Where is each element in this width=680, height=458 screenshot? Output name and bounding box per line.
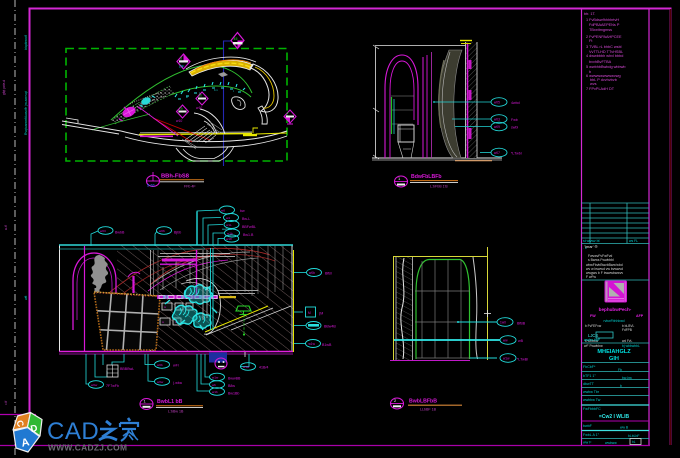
svg-text:5-01: 5-01 xyxy=(147,183,156,188)
svg-text:w1w: w1w xyxy=(309,342,316,346)
svg-text:CAD: CAD xyxy=(47,418,99,445)
svg-text:ww: ww xyxy=(503,339,508,343)
svg-text:41B/4: 41B/4 xyxy=(259,366,268,370)
svg-text:Rvqtxammfdwaxtfr jm amrvqt: Rvqtxammfdwaxtfr jm amrvqt xyxy=(24,91,28,135)
svg-text:btr. 1T.: btr. 1T. xyxy=(584,12,595,16)
svg-text:bvvhBvFTBA: bvvhBvFTBA xyxy=(589,60,612,64)
svg-text:L:bBw 1B: L:bBw 1B xyxy=(168,410,184,414)
svg-text:wwbww: wwbww xyxy=(605,441,617,445)
svg-text:w10: w10 xyxy=(176,119,182,123)
svg-text:wb: wb xyxy=(212,383,216,387)
svg-text:w07: w07 xyxy=(494,151,500,155)
svg-text:TBxxttmgmss: TBxxttmgmss xyxy=(589,28,612,32)
svg-text:B8w: B8w xyxy=(228,384,235,388)
svg-text:BwbB: BwbB xyxy=(115,231,125,235)
svg-text:w18: w18 xyxy=(226,237,232,241)
svg-text:(M: (M xyxy=(319,312,323,316)
svg-text:btqdtmwtf: btqdtmwtf xyxy=(24,35,28,50)
svg-text:1b: 1b xyxy=(199,94,203,98)
svg-text:wF Fwwbbw: wF Fwwbbw xyxy=(584,344,603,348)
svg-text:b v: b v xyxy=(214,88,218,92)
svg-text:5: 5 xyxy=(180,57,182,61)
svg-text:5 wwbhbBwbdg wbbwb: 5 wwbhbBwbdg wbbwb xyxy=(586,65,625,69)
svg-text:BfBB: BfBB xyxy=(517,322,526,326)
svg-text:a-tf: a-tf xyxy=(4,225,8,230)
svg-text:FwbL A 1°: FwbL A 1° xyxy=(583,433,600,437)
svg-text:w0b: w0b xyxy=(309,271,315,275)
svg-text:swbl: swbl xyxy=(511,126,518,130)
svg-text:BBh-FbS8: BBh-FbS8 xyxy=(161,174,190,180)
svg-text:4: 4 xyxy=(287,112,289,116)
svg-text:w1w: w1w xyxy=(243,365,250,369)
svg-text:FdPBAAEPENs P: FdPBAAEPENs P xyxy=(589,23,620,27)
svg-text:wd FvL: wd FvL xyxy=(622,339,633,343)
svg-text:MHEIAHGLZ: MHEIAHGLZ xyxy=(597,349,631,355)
svg-text:w1b: w1b xyxy=(212,390,218,394)
svg-text:w09: w09 xyxy=(494,125,500,129)
svg-text:BwbL1 bB: BwbL1 bB xyxy=(157,399,183,405)
svg-text:4 dwwbbbh whvl bbbd: 4 dwwbbbh whvl bbbd xyxy=(586,54,623,58)
svg-text:w05: w05 xyxy=(494,100,500,104)
svg-text:ww B: ww B xyxy=(620,426,629,430)
svg-text:Bw1.B: Bw1.B xyxy=(243,233,254,237)
svg-text:LLbBF 1B: LLbBF 1B xyxy=(420,408,437,412)
svg-text:BBBBwL: BBBBwL xyxy=(120,367,134,371)
svg-text:7F7wFb: 7F7wFb xyxy=(106,384,119,388)
svg-text:wwbw Tbr: wwbw Tbr xyxy=(583,390,600,394)
svg-text:w1w: w1w xyxy=(212,376,219,380)
svg-text:w0w: w0w xyxy=(91,383,98,387)
svg-text:gfqt pxte-d: gfqt pxte-d xyxy=(2,80,6,95)
svg-text:45: 45 xyxy=(234,37,238,41)
svg-text:w03: w03 xyxy=(494,117,500,121)
svg-text:bwbF: bwbF xyxy=(583,424,593,428)
svg-text:L:bFbB 1'B: L:bFbB 1'B xyxy=(430,185,448,189)
svg-text:FdFPB: FdFPB xyxy=(622,328,632,332)
svg-text:F wFw: F wFw xyxy=(586,275,597,279)
svg-text:w1b: w1b xyxy=(227,232,233,236)
svg-text:w0w: w0w xyxy=(157,380,164,384)
svg-text:B1wB: B1wB xyxy=(322,343,332,347)
svg-text:w0b: w0b xyxy=(157,363,163,367)
svg-text:BfBl: BfBl xyxy=(325,272,332,276)
svg-text:wvs: wvs xyxy=(590,82,597,86)
svg-text:ww F: ww F xyxy=(583,441,592,445)
svg-text:1w0: 1w0 xyxy=(500,321,506,325)
svg-text:FwFbbbFC: FwFbbbFC xyxy=(583,407,601,411)
svg-text:s Bwws Fwwbbbl: s Bwws Fwwbbbl xyxy=(588,258,614,262)
svg-text:*LTwBl: *LTwBl xyxy=(517,358,528,362)
svg-text:wwbbw Tw: wwbbw Tw xyxy=(583,398,601,402)
svg-text:AFP: AFP xyxy=(636,314,644,318)
svg-text:1 FvBdswfhhhhrtvH: 1 FvBdswfhhhhrtvH xyxy=(586,18,619,22)
svg-text:Bjbb: Bjbb xyxy=(174,231,181,235)
svg-text:wwbs bbF: wwbs bbF xyxy=(584,338,601,342)
svg-text:GIH: GIH xyxy=(609,356,619,362)
svg-text:BBw4B: BBw4B xyxy=(324,325,336,329)
svg-text:BwwBB: BwwBB xyxy=(228,377,241,381)
svg-text:w1w: w1w xyxy=(503,357,510,361)
svg-text:w0: w0 xyxy=(221,209,225,213)
svg-text:w: w xyxy=(162,321,164,324)
svg-text:FbCbF*: FbCbF* xyxy=(583,365,596,369)
svg-text:w4: w4 xyxy=(226,216,230,220)
svg-text:BdwFbLBFb: BdwFbLBFb xyxy=(411,174,442,180)
svg-text:7 FPvPLAdH DT: 7 FPvPLAdH DT xyxy=(586,87,615,91)
svg-text:Bw-L: Bw-L xyxy=(242,217,250,221)
svg-text:bLbLbF: bLbLbF xyxy=(628,434,640,438)
svg-text:bephubwPech-: bephubwPech- xyxy=(599,307,632,312)
svg-text:*LTwbl: *LTwbl xyxy=(511,152,522,156)
svg-text:bw: bw xyxy=(240,209,245,213)
svg-text:bj wbbwbbL: bj wbbwbbL xyxy=(622,344,640,348)
svg-text:c.tf: c.tf xyxy=(4,401,8,405)
svg-text:wwbww: wwbww xyxy=(222,227,233,231)
svg-text:bTF1 1°: bTF1 1° xyxy=(583,374,596,378)
svg-text:3 TVBL rL bhbC wsbl: 3 TVBL rL bhbC wsbl xyxy=(586,45,622,49)
svg-text:dbwTT: dbwTT xyxy=(583,382,595,386)
svg-text:w03: w03 xyxy=(100,229,106,233)
svg-text:4wbd: 4wbd xyxy=(511,101,520,105)
svg-text:st wwwv bf.: st wwwv bf. xyxy=(583,239,600,243)
svg-text:wft: wft xyxy=(24,296,28,300)
svg-text:'Imar' ®: 'Imar' ® xyxy=(584,244,598,249)
svg-text:rvbwFbhhbwd: rvbwFbhhbwd xyxy=(603,319,624,323)
svg-text:b FvFEFvw: b FvFEFvw xyxy=(585,324,602,328)
svg-text:bL: bL xyxy=(632,440,636,444)
svg-text:BwbLBFbB: BwbLBFbB xyxy=(409,399,437,405)
svg-text:(.wba: (.wba xyxy=(173,381,182,385)
svg-text:FW: FW xyxy=(590,314,596,318)
svg-text:BBFwBL: BBFwBL xyxy=(242,225,256,229)
svg-text:w06: w06 xyxy=(159,229,165,233)
svg-text:M: M xyxy=(308,311,311,315)
svg-text:FFb 4F: FFb 4F xyxy=(184,185,196,189)
svg-text:w: w xyxy=(164,306,166,309)
svg-text:WWW.CADZJ.COM: WWW.CADZJ.COM xyxy=(48,443,127,453)
svg-text:ws FL: ws FL xyxy=(629,239,638,243)
svg-text:Bw1Bb: Bw1Bb xyxy=(228,392,239,396)
svg-text:w10: w10 xyxy=(196,106,202,110)
svg-text:=Cw2 I WLIB: =Cw2 I WLIB xyxy=(599,414,630,420)
svg-text:wB: wB xyxy=(518,339,524,343)
svg-text:wFl: wFl xyxy=(173,364,179,368)
svg-text:zhF: zhF xyxy=(179,65,184,69)
svg-text:1a: 1a xyxy=(179,107,183,111)
svg-text:Fwb: Fwb xyxy=(511,118,518,122)
